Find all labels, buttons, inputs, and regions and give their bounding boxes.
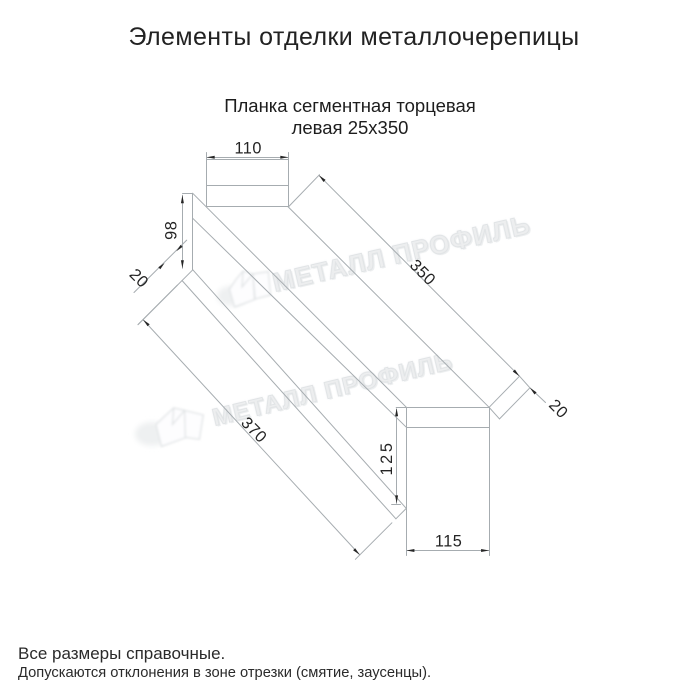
svg-text:370: 370 bbox=[237, 414, 270, 447]
svg-text:98: 98 bbox=[162, 221, 180, 240]
svg-text:125: 125 bbox=[378, 441, 396, 476]
svg-text:20: 20 bbox=[545, 396, 571, 422]
svg-text:110: 110 bbox=[234, 140, 261, 158]
svg-text:350: 350 bbox=[406, 256, 439, 289]
svg-text:20: 20 bbox=[126, 265, 152, 291]
svg-text:115: 115 bbox=[435, 533, 462, 551]
